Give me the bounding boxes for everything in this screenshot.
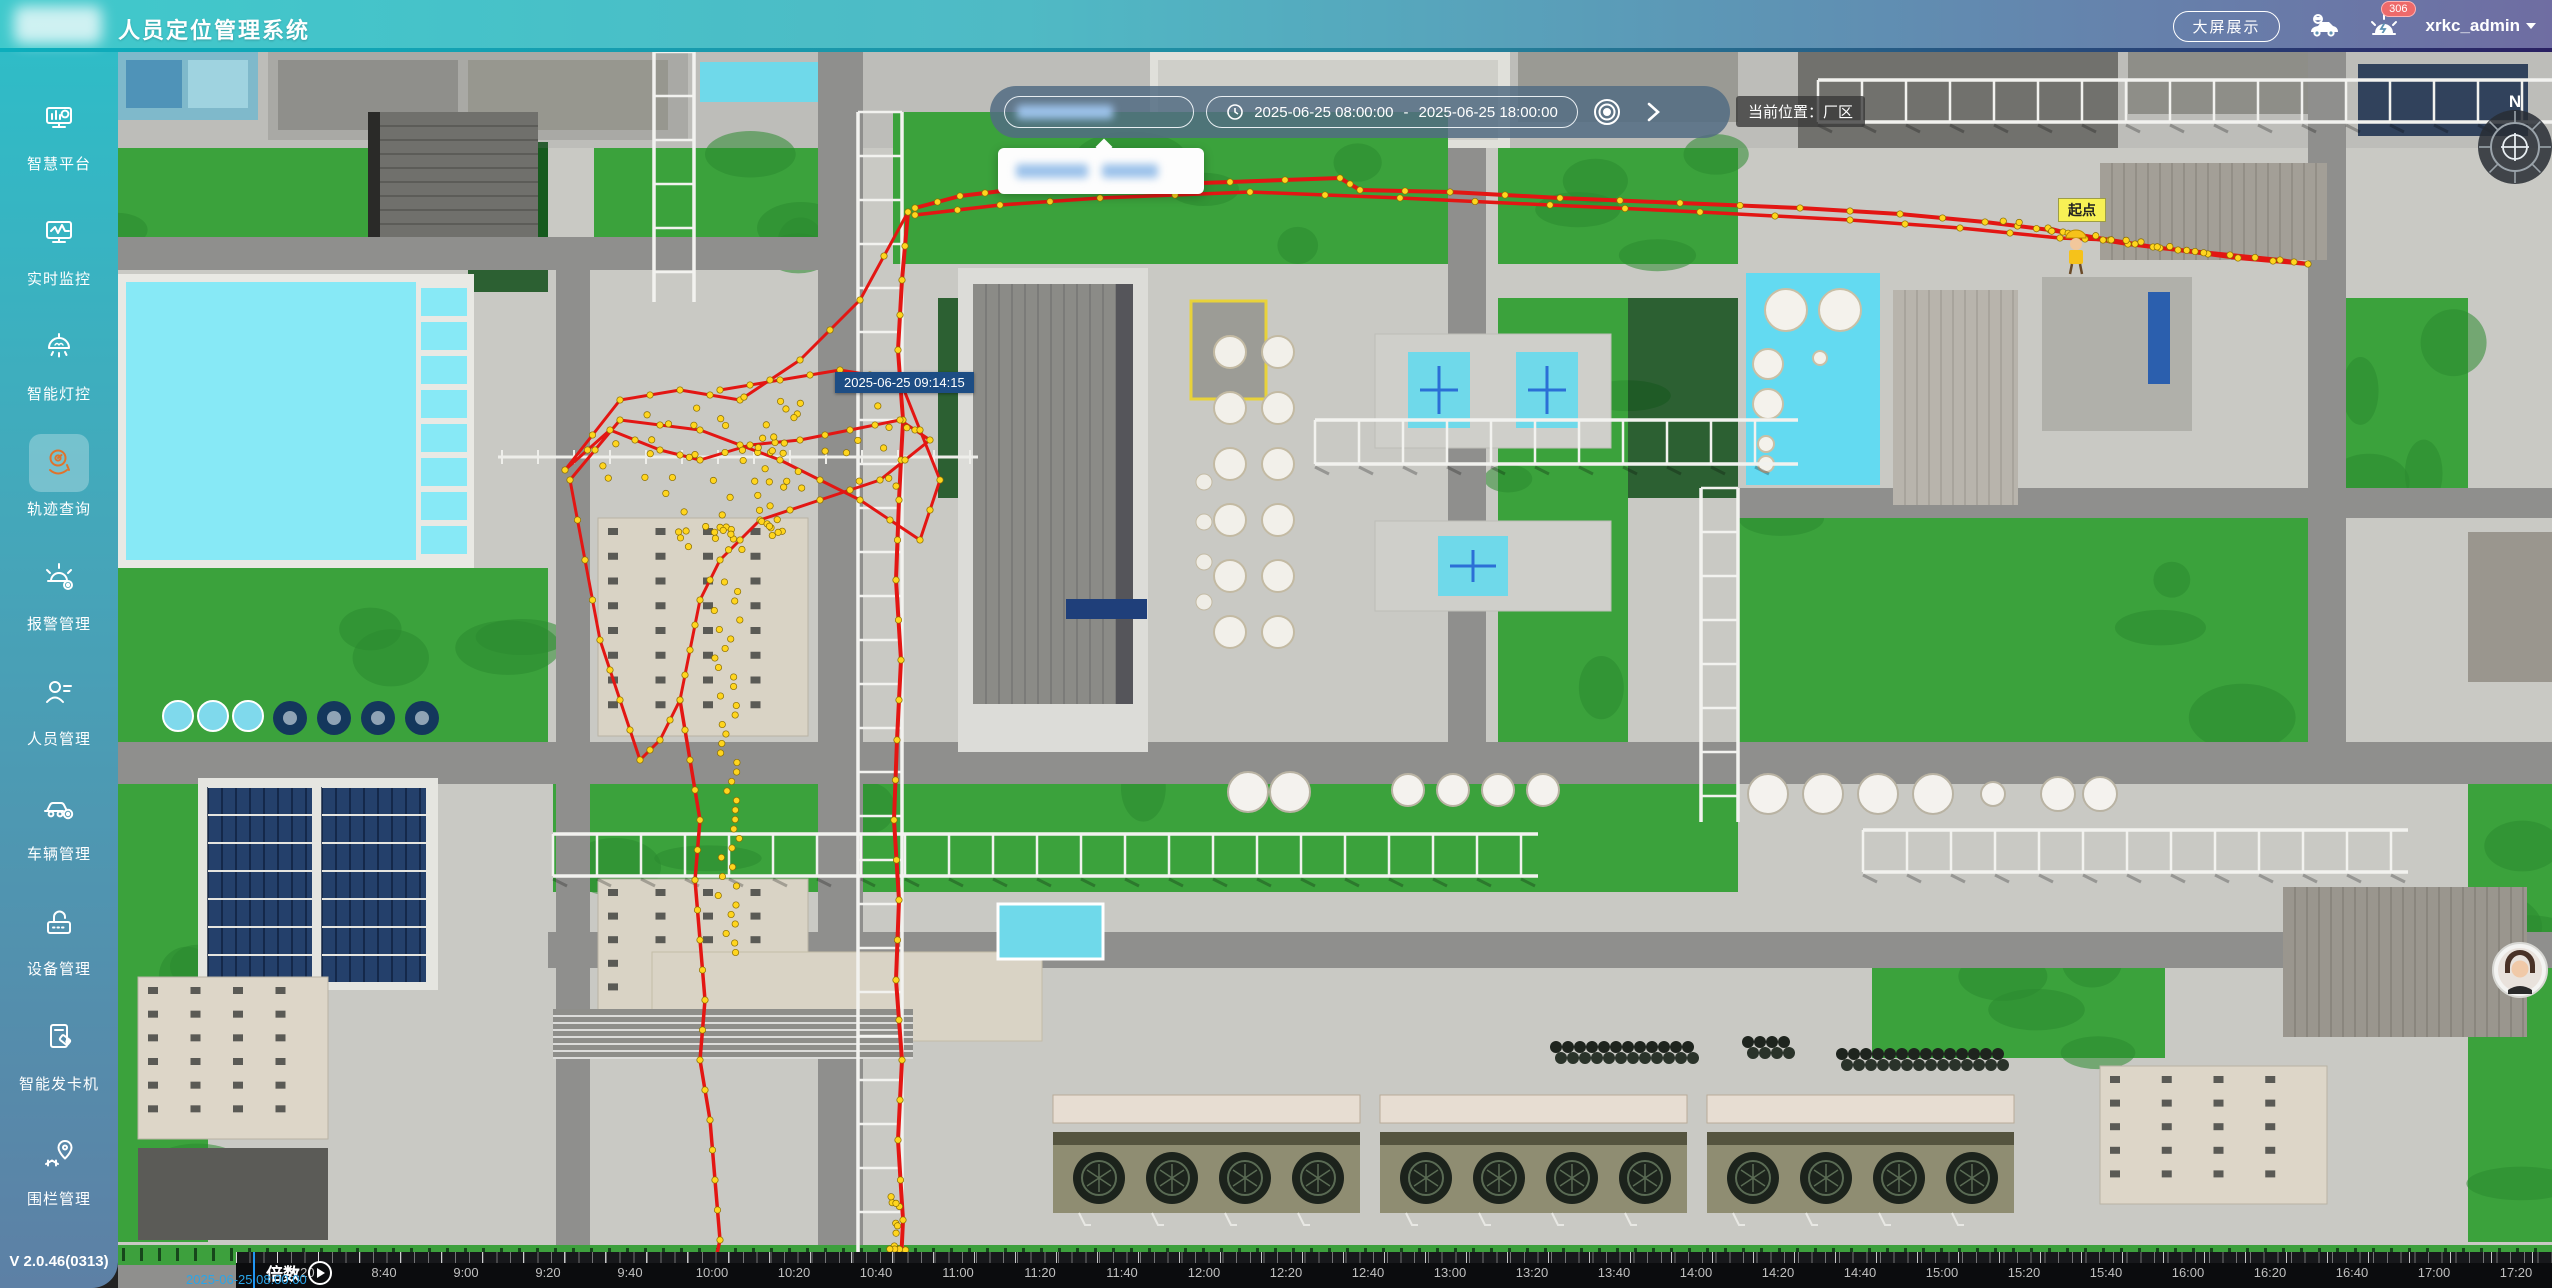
timeline-tick-label: 12:20 [1270, 1265, 1303, 1280]
search-suggestion-item[interactable] [998, 148, 1204, 194]
sidebar-item-device-mgmt[interactable]: 设备管理 [0, 879, 118, 994]
alarm-icon[interactable]: 306 [2366, 9, 2400, 43]
sidebar: 智慧平台实时监控智能灯控轨迹查询报警管理人员管理车辆管理设备管理智能发卡机围栏管… [0, 52, 118, 1288]
playback-current-time: 2025-06-25 08:00:00 [186, 1272, 307, 1287]
username-label: xrkc_admin [2426, 16, 2521, 36]
timeline-tick-label: 8:40 [371, 1265, 396, 1280]
person-search-input[interactable] [1004, 96, 1194, 128]
search-input-redacted-value [1017, 105, 1113, 119]
sidebar-item-label: 报警管理 [27, 613, 91, 634]
date-range-picker[interactable]: 2025-06-25 08:00:00 - 2025-06-25 18:00:0… [1206, 96, 1578, 128]
timeline-tick-label: 10:40 [860, 1265, 893, 1280]
sidebar-item-vehicle-mgmt[interactable]: 车辆管理 [0, 764, 118, 879]
big-screen-button[interactable]: 大屏展示 [2173, 11, 2279, 42]
date-start: 2025-06-25 08:00:00 [1254, 104, 1393, 121]
timeline-tick-label: 11:40 [1106, 1265, 1138, 1280]
timeline-tick-label: 15:40 [2090, 1265, 2123, 1280]
user-menu[interactable]: xrkc_admin [2426, 16, 2537, 36]
device-mgmt-icon [29, 894, 89, 952]
search-submit-arrow[interactable] [1636, 95, 1670, 129]
sidebar-item-label: 实时监控 [27, 268, 91, 289]
sidebar-item-smart-light[interactable]: 智能灯控 [0, 304, 118, 419]
compass-north-label: N [2509, 92, 2521, 111]
timeline-tick-label: 11:00 [942, 1265, 974, 1280]
sidebar-item-label: 设备管理 [27, 958, 91, 979]
timeline-tick-label: 9:20 [535, 1265, 560, 1280]
card-dispenser-icon [29, 1009, 89, 1067]
timeline-tick-label: 13:20 [1516, 1265, 1549, 1280]
date-end: 2025-06-25 18:00:00 [1419, 104, 1558, 121]
sidebar-item-label: 轨迹查询 [27, 498, 91, 519]
vehicle-mgmt-icon [29, 779, 89, 837]
timeline-tick-label: 12:00 [1188, 1265, 1221, 1280]
timeline-tick-label: 13:40 [1598, 1265, 1631, 1280]
locate-target-icon[interactable] [1590, 95, 1624, 129]
timeline-tick-label: 15:20 [2008, 1265, 2041, 1280]
app-title: 人员定位管理系统 [118, 13, 310, 45]
timeline-tick-label: 9:40 [617, 1265, 642, 1280]
app-header: 人员定位管理系统 大屏展示 306 xrkc_ad [0, 0, 2552, 52]
sidebar-item-personnel-mgmt[interactable]: 人员管理 [0, 649, 118, 764]
sidebar-item-label: 智能灯控 [27, 383, 91, 404]
timeline-tick-label: 14:00 [1680, 1265, 1713, 1280]
timeline-tick-label: 9:00 [453, 1265, 478, 1280]
facility-map[interactable]: N [118, 52, 2552, 1288]
sidebar-item-track-query[interactable]: 轨迹查询 [0, 419, 118, 534]
sidebar-item-card-dispenser[interactable]: 智能发卡机 [0, 994, 118, 1109]
timeline-tick-label: 17:00 [2418, 1265, 2451, 1280]
sidebar-item-realtime-monitor[interactable]: 实时监控 [0, 189, 118, 304]
timeline-tick-label: 16:20 [2254, 1265, 2287, 1280]
timeline-tick-label: 10:20 [778, 1265, 811, 1280]
timeline-tick-label: 16:00 [2172, 1265, 2205, 1280]
track-time-tooltip: 2025-06-25 09:14:15 [835, 372, 974, 393]
playback-timeline[interactable]: 8:208:409:009:209:4010:0010:2010:4011:00… [236, 1252, 2552, 1288]
timeline-tick-label: 14:40 [1844, 1265, 1877, 1280]
timeline-tick-label: 16:40 [2336, 1265, 2369, 1280]
timeline-tick-label: 11:20 [1024, 1265, 1056, 1280]
track-query-icon [29, 434, 89, 492]
smart-platform-icon [29, 89, 89, 147]
sidebar-item-fence-mgmt[interactable]: 围栏管理 [0, 1109, 118, 1224]
play-button[interactable] [308, 1261, 332, 1285]
map-area[interactable]: N 2025-06-25 09:14:15 起点 2025-06-25 08:0… [118, 52, 2552, 1288]
map-toolbar: 2025-06-25 08:00:00 - 2025-06-25 18:00:0… [990, 86, 1730, 138]
timeline-tick-label: 12:40 [1352, 1265, 1385, 1280]
date-separator: - [1404, 104, 1409, 121]
sidebar-item-label: 车辆管理 [27, 843, 91, 864]
app-root: 人员定位管理系统 大屏展示 306 xrkc_ad [0, 0, 2552, 1288]
alarm-count-badge: 306 [2381, 1, 2415, 17]
app-logo [14, 6, 102, 44]
chevron-down-icon [2526, 23, 2536, 29]
track-start-label: 起点 [2058, 198, 2106, 222]
sidebar-item-label: 围栏管理 [27, 1188, 91, 1209]
timeline-tick-label: 15:00 [1926, 1265, 1959, 1280]
assistant-avatar[interactable] [2493, 943, 2547, 997]
timeline-tick-label: 10:00 [696, 1265, 729, 1280]
timeline-tick-label: 17:20 [2500, 1265, 2533, 1280]
clock-icon [1226, 103, 1244, 121]
sidebar-item-smart-platform[interactable]: 智慧平台 [0, 74, 118, 189]
alarm-mgmt-icon [29, 549, 89, 607]
timeline-tick-label: 14:20 [1762, 1265, 1795, 1280]
sidebar-item-label: 智能发卡机 [19, 1073, 99, 1094]
realtime-monitor-icon [29, 204, 89, 262]
timeline-ticks [236, 1252, 2552, 1263]
personnel-mgmt-icon [29, 664, 89, 722]
sidebar-item-alarm-mgmt[interactable]: 报警管理 [0, 534, 118, 649]
current-location-badge: 当前位置：厂区 [1736, 96, 1865, 127]
fence-mgmt-icon [29, 1124, 89, 1182]
version-label: V 2.0.46(0313) [0, 1243, 118, 1288]
timeline-tick-label: 13:00 [1434, 1265, 1467, 1280]
sidebar-item-label: 智慧平台 [27, 153, 91, 174]
smart-light-icon [29, 319, 89, 377]
sidebar-item-label: 人员管理 [27, 728, 91, 749]
vehicle-icon[interactable] [2306, 9, 2340, 43]
